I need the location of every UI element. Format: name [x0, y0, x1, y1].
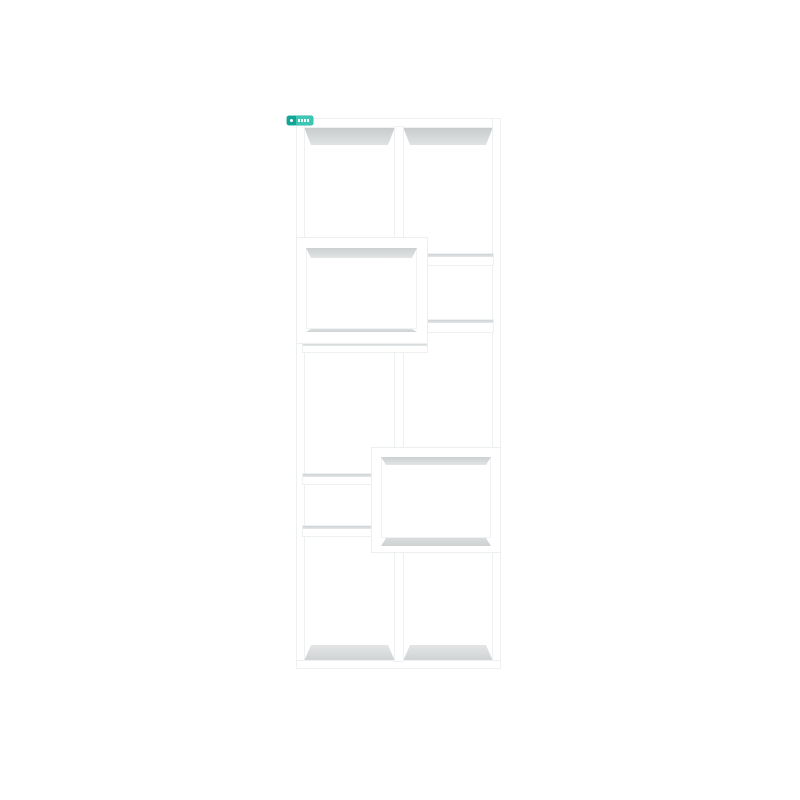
floor-surface-right [403, 645, 493, 661]
right-side-panel [493, 119, 500, 668]
shelf-right-cubby-bottom [426, 320, 493, 332]
brand-badge [287, 116, 313, 125]
box-shelf-upper [297, 238, 427, 343]
shelf-left-cubby-bottom [303, 526, 373, 536]
box-shelf-lower-interior [381, 457, 491, 538]
shelf-left-cubby-top [303, 474, 373, 484]
top-underside-shadow-right [403, 127, 493, 145]
center-divider-middle [395, 350, 403, 448]
box-shelf-upper-top-shadow [306, 248, 417, 258]
center-divider-bottom [395, 549, 403, 661]
box-shelf-upper-bottom-shade [306, 329, 417, 332]
box-shelf-upper-interior [306, 248, 417, 329]
left-side-panel [297, 119, 304, 668]
badge-dot-icon [287, 116, 296, 125]
box-shelf-lower [372, 448, 500, 552]
floor-surface-left [304, 645, 395, 661]
bookshelf [297, 119, 500, 668]
badge-text-marks [298, 119, 310, 122]
product-stage [0, 0, 800, 800]
shelf-under-upper-box [303, 343, 427, 352]
center-divider-top [395, 127, 403, 238]
shelf-right-cubby-top [426, 254, 493, 265]
box-shelf-lower-bottom-shade [381, 538, 491, 546]
bottom-panel [297, 661, 500, 668]
top-panel [297, 119, 500, 127]
box-shelf-lower-top-shadow [381, 457, 491, 465]
top-underside-shadow-left [304, 127, 395, 145]
